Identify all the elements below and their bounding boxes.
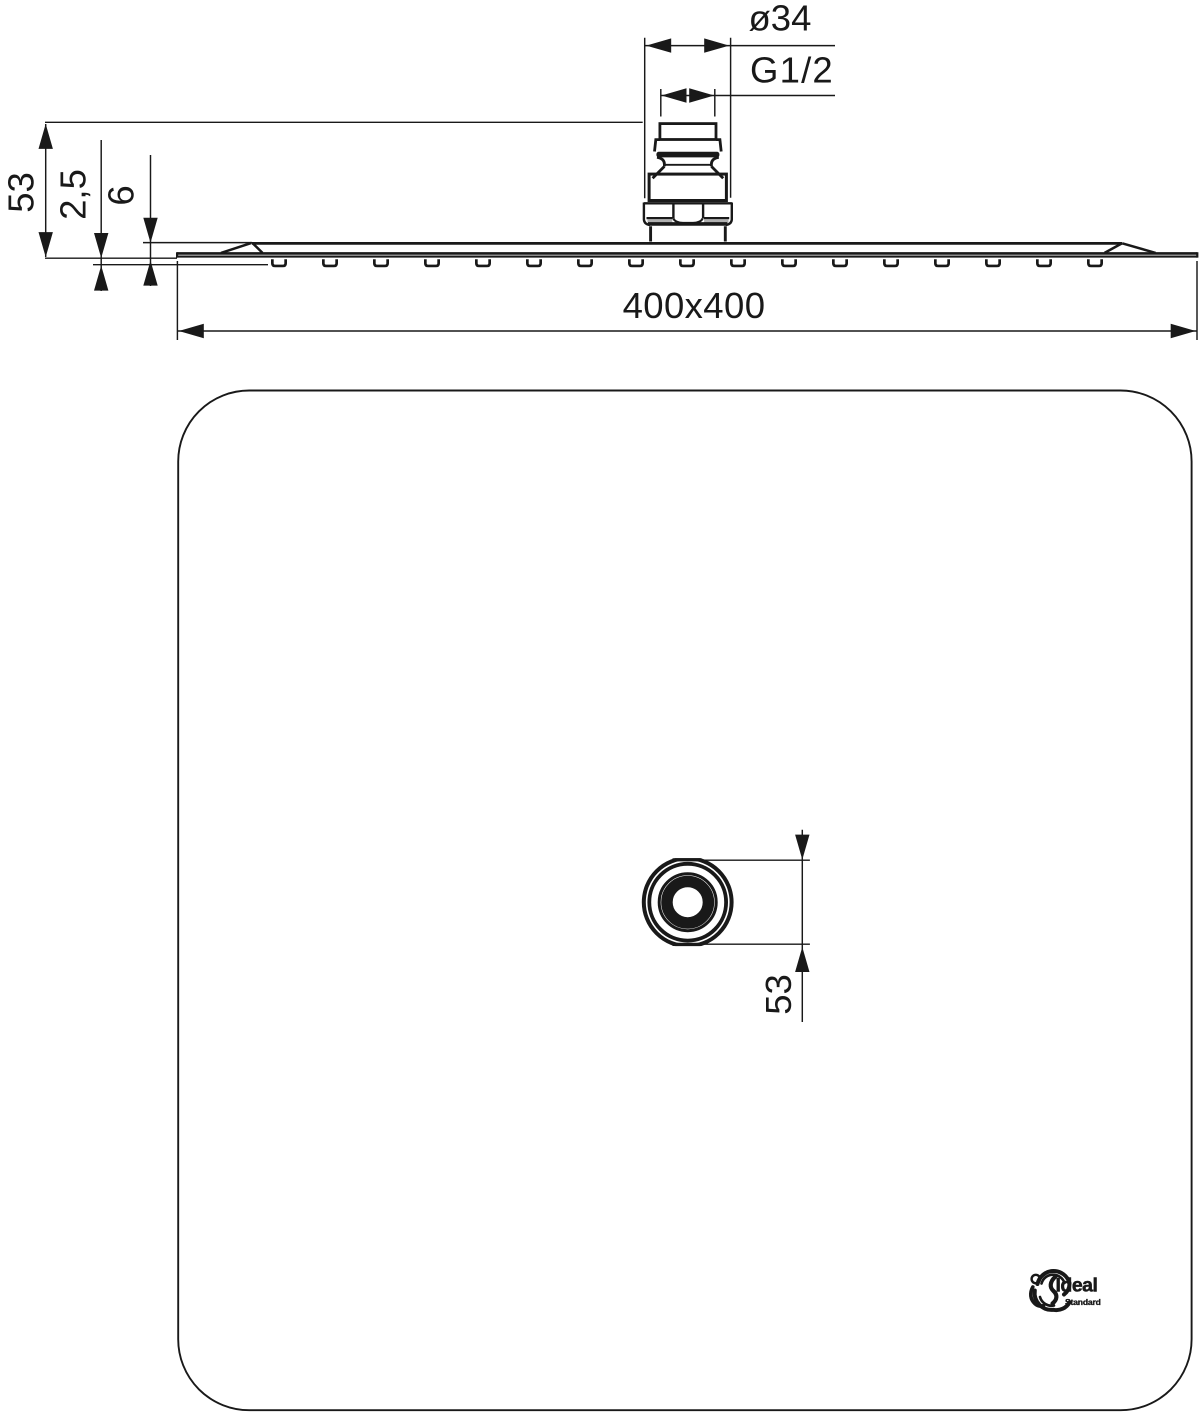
svg-text:400x400: 400x400 bbox=[623, 285, 766, 326]
svg-text:2,5: 2,5 bbox=[53, 169, 94, 220]
svg-text:53: 53 bbox=[758, 974, 799, 1015]
svg-text:G1/2: G1/2 bbox=[750, 50, 834, 91]
svg-text:6: 6 bbox=[101, 185, 142, 205]
svg-text:Ideal: Ideal bbox=[1056, 1275, 1098, 1297]
svg-text:ø34: ø34 bbox=[749, 0, 812, 39]
svg-text:Standard: Standard bbox=[1065, 1297, 1101, 1307]
svg-text:53: 53 bbox=[1, 172, 42, 213]
